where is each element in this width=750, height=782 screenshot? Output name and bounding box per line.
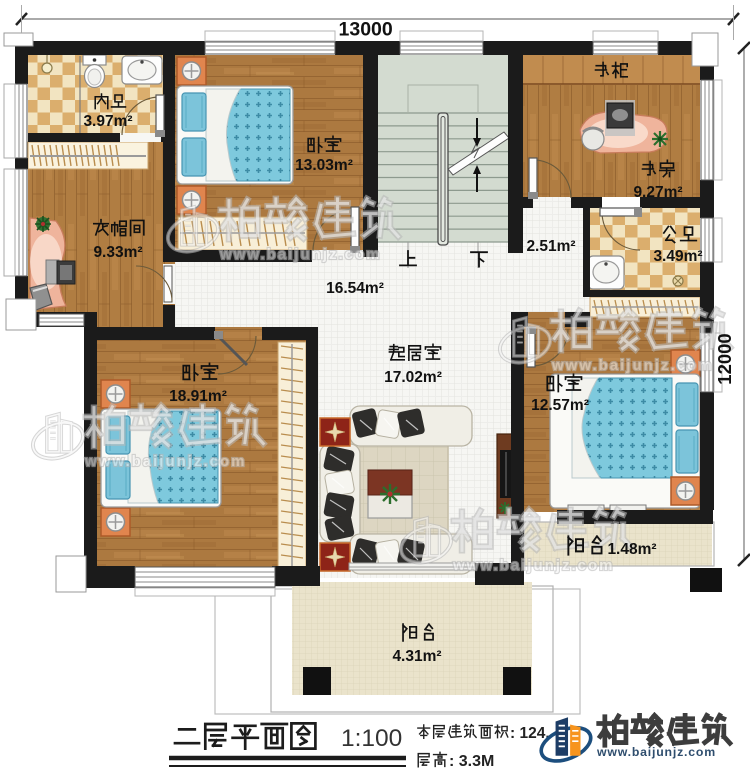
svg-text:3.49m²: 3.49m² <box>653 248 702 265</box>
svg-text:13.03m²: 13.03m² <box>295 157 353 174</box>
svg-text:3.97m²: 3.97m² <box>83 113 132 130</box>
svg-text:www.baijunjz.com: www.baijunjz.com <box>551 357 713 374</box>
svg-text:1:100: 1:100 <box>341 725 402 752</box>
svg-text:9.33m²: 9.33m² <box>93 244 142 261</box>
svg-text:: 124.: : 124. <box>510 725 550 742</box>
svg-text:1.48m²: 1.48m² <box>607 541 656 558</box>
svg-text:4.31m²: 4.31m² <box>392 648 441 665</box>
svg-text:www.baijunjz.com: www.baijunjz.com <box>84 453 246 470</box>
svg-text:18.91m²: 18.91m² <box>169 388 227 405</box>
svg-text:: 3.3M: : 3.3M <box>449 753 494 770</box>
svg-text:16.54m²: 16.54m² <box>326 280 384 297</box>
svg-text:www.baijunjz.com: www.baijunjz.com <box>452 557 614 574</box>
svg-text:12.57m²: 12.57m² <box>531 397 589 414</box>
svg-text:17.02m²: 17.02m² <box>384 369 442 386</box>
svg-text:13000: 13000 <box>339 19 393 41</box>
svg-text:2.51m²: 2.51m² <box>526 238 575 255</box>
svg-text:www.baijunjz.com: www.baijunjz.com <box>219 246 381 263</box>
svg-text:www.baijunjz.com: www.baijunjz.com <box>596 745 716 759</box>
svg-text:12000: 12000 <box>714 333 735 384</box>
svg-text:9.27m²: 9.27m² <box>633 184 682 201</box>
